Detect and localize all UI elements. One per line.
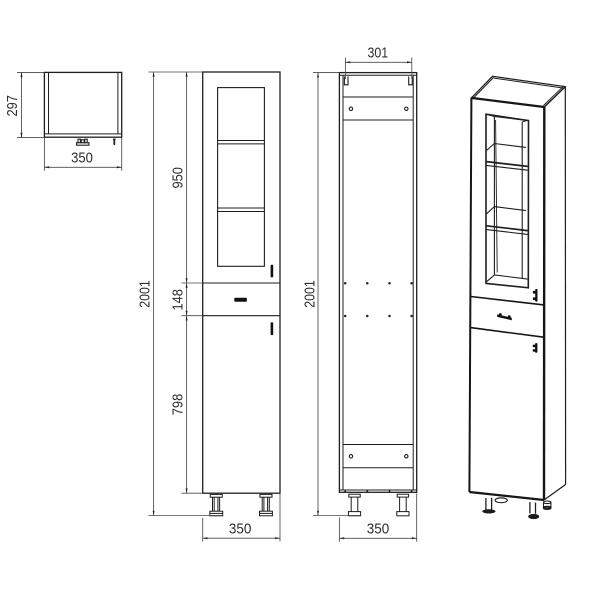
svg-text:950: 950 xyxy=(169,167,186,189)
svg-text:148: 148 xyxy=(169,289,186,311)
svg-text:798: 798 xyxy=(169,394,186,416)
svg-text:2001: 2001 xyxy=(301,280,318,308)
svg-text:350: 350 xyxy=(229,521,252,538)
svg-text:301: 301 xyxy=(367,45,388,62)
svg-text:350: 350 xyxy=(71,150,93,167)
svg-text:350: 350 xyxy=(367,521,390,538)
svg-text:2001: 2001 xyxy=(136,280,153,308)
svg-text:297: 297 xyxy=(4,95,21,117)
